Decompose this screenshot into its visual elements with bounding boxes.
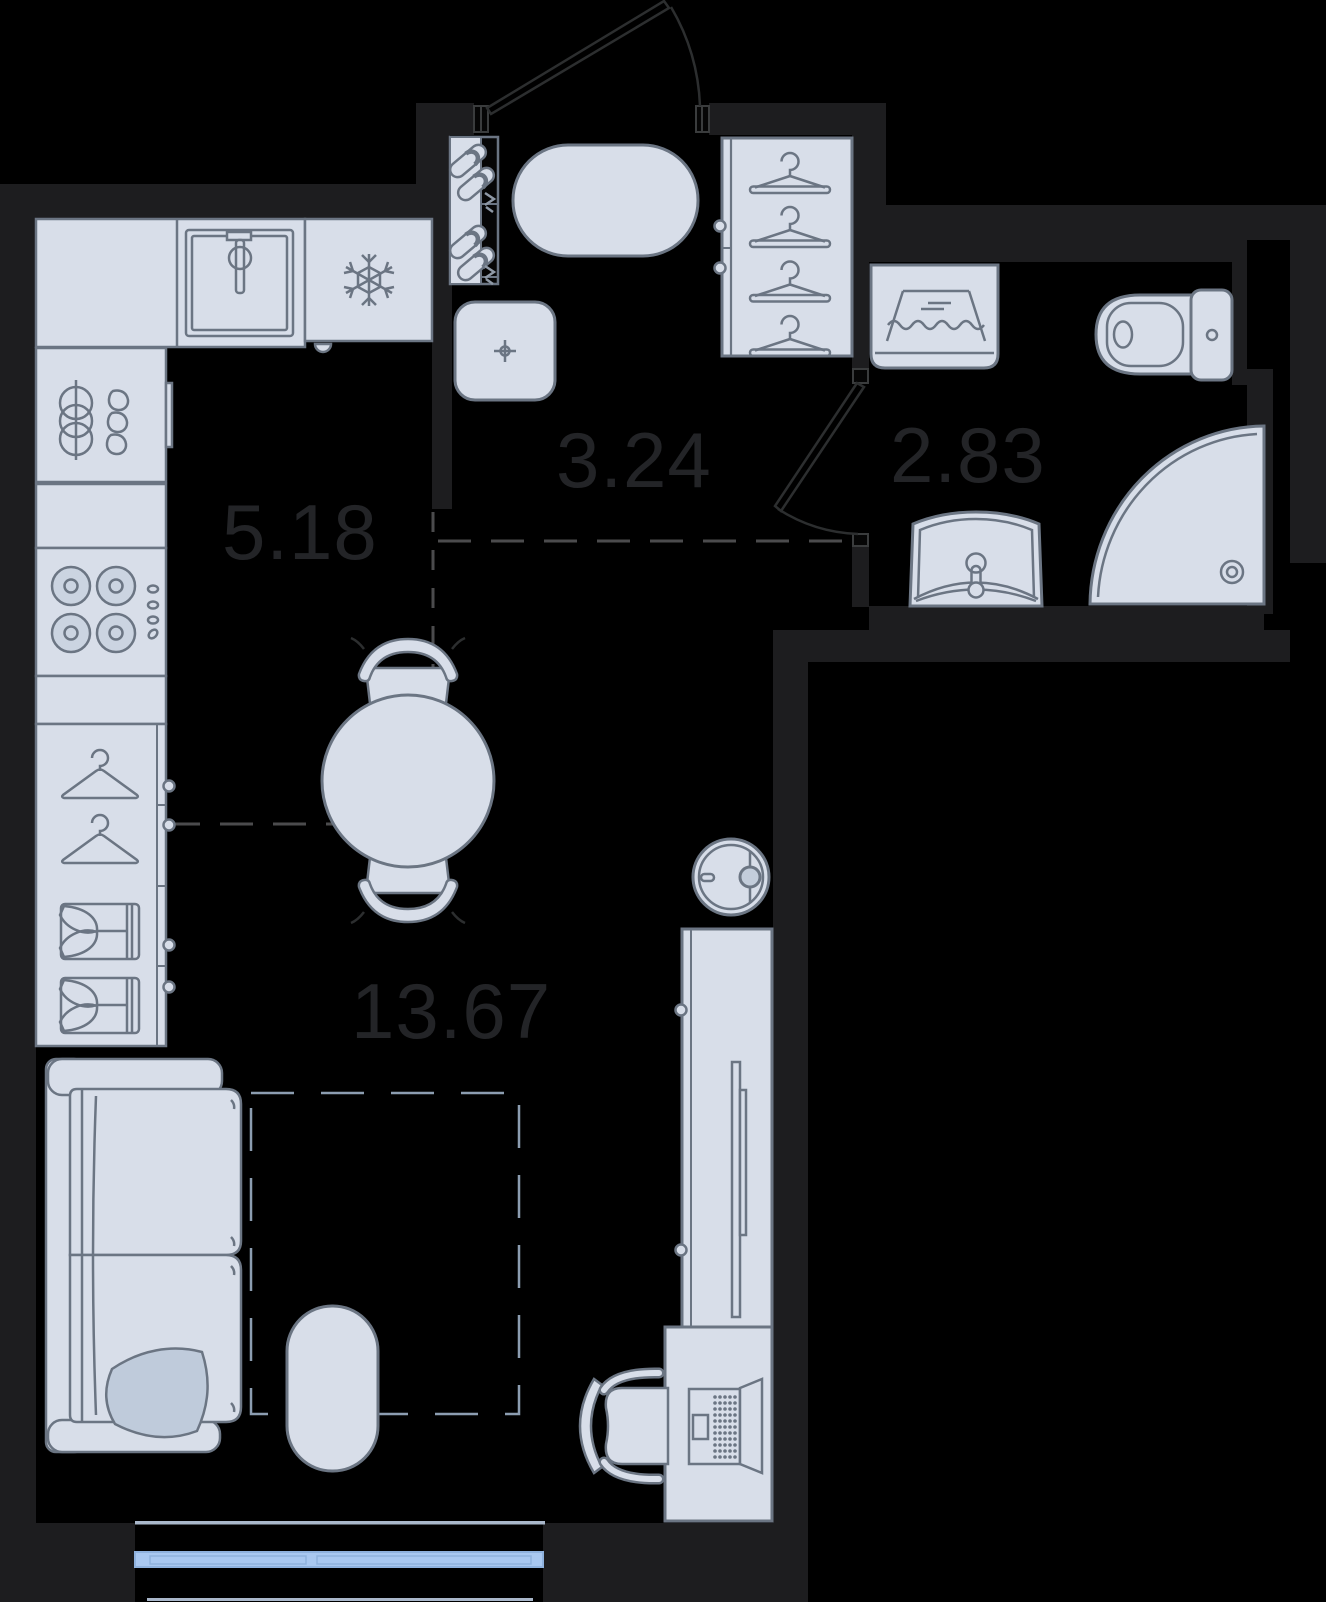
svg-text:5.18: 5.18 <box>222 488 378 576</box>
svg-text:3.24: 3.24 <box>556 416 712 504</box>
svg-text:13.67: 13.67 <box>351 967 551 1055</box>
svg-text:2.83: 2.83 <box>890 411 1046 499</box>
